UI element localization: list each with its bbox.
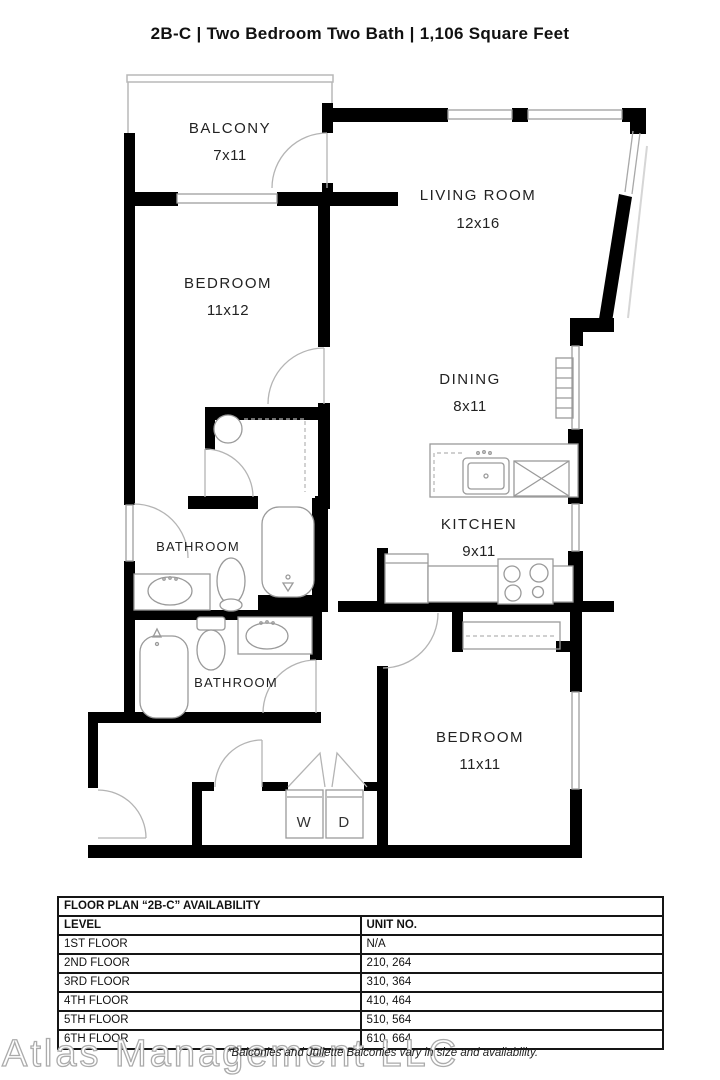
washer-label: W (297, 814, 312, 831)
column-header-unit: UNIT NO. (361, 916, 664, 935)
room-dims-bedroom-2: 11x11 (459, 756, 500, 773)
dishwasher-fixture (514, 461, 569, 496)
table-row: 2ND FLOOR 210, 264 (58, 954, 663, 973)
refrigerator-fixture (385, 554, 428, 603)
availability-table: FLOOR PLAN “2B-C” AVAILABILITY LEVEL UNI… (57, 896, 664, 1050)
room-dims-living-room: 12x16 (456, 215, 499, 232)
dining-shelf-fixture (556, 358, 573, 418)
bedroom2-closet-fixture (463, 622, 560, 649)
bedroom1-door (268, 348, 324, 404)
unit-cell: 310, 364 (361, 973, 664, 992)
level-cell: 4TH FLOOR (58, 992, 361, 1011)
room-dims-bedroom-1: 11x12 (207, 302, 249, 319)
room-label-bathroom-1: BATHROOM (156, 539, 240, 554)
level-cell: 3RD FLOOR (58, 973, 361, 992)
room-label-bathroom-2: BATHROOM (194, 675, 278, 690)
unit-cell: 410, 464 (361, 992, 664, 1011)
unit-cell: 210, 264 (361, 954, 664, 973)
unit-cell: N/A (361, 935, 664, 954)
room-label-kitchen: KITCHEN (441, 516, 517, 533)
availability-table-title: FLOOR PLAN “2B-C” AVAILABILITY (58, 897, 663, 916)
bedroom2-door (383, 613, 438, 668)
room-dims-dining: 8x11 (453, 398, 486, 415)
availability-table-title-row: FLOOR PLAN “2B-C” AVAILABILITY (58, 897, 663, 916)
level-cell: 5TH FLOOR (58, 1011, 361, 1030)
juliette-balcony-line (628, 146, 647, 318)
laundry-bifold-doors (288, 753, 367, 787)
bathtub-fixture-1 (262, 507, 314, 597)
column-header-level: LEVEL (58, 916, 361, 935)
toilet-fixture-1 (217, 558, 245, 611)
walk-in-closet-fixtures (214, 415, 305, 492)
floor-plan-page: 2B-C | Two Bedroom Two Bath | 1,106 Squa… (0, 0, 720, 1080)
stove-fixture (498, 559, 553, 604)
dryer-label: D (338, 814, 349, 831)
balcony-note: *Balconies and Juliette Balconies vary i… (227, 1047, 538, 1059)
room-label-dining: DINING (439, 371, 501, 388)
room-label-bedroom-2: BEDROOM (436, 729, 524, 746)
level-cell: 2ND FLOOR (58, 954, 361, 973)
bathtub-fixture-2 (140, 629, 188, 718)
room-label-living-room: LIVING ROOM (420, 187, 537, 204)
closet-door (205, 449, 253, 497)
room-dims-kitchen: 9x11 (462, 543, 495, 560)
entry-door (98, 790, 146, 838)
fixtures (134, 358, 578, 838)
unit-cell: 510, 564 (361, 1011, 664, 1030)
sink-vanity-fixture-1 (134, 574, 210, 610)
level-cell: 1ST FLOOR (58, 935, 361, 954)
table-row: 4TH FLOOR 410, 464 (58, 992, 663, 1011)
room-label-bedroom-1: BEDROOM (184, 275, 272, 292)
hall-closet-door (215, 740, 262, 787)
sink-vanity-fixture-2 (238, 617, 312, 654)
room-dims-balcony: 7x11 (213, 147, 246, 164)
table-row: 3RD FLOOR 310, 364 (58, 973, 663, 992)
availability-table-header-row: LEVEL UNIT NO. (58, 916, 663, 935)
table-row: 5TH FLOOR 510, 564 (58, 1011, 663, 1030)
toilet-fixture-2 (197, 617, 225, 670)
balcony-door (272, 133, 327, 188)
table-row: 1ST FLOOR N/A (58, 935, 663, 954)
room-label-balcony: BALCONY (189, 120, 271, 137)
